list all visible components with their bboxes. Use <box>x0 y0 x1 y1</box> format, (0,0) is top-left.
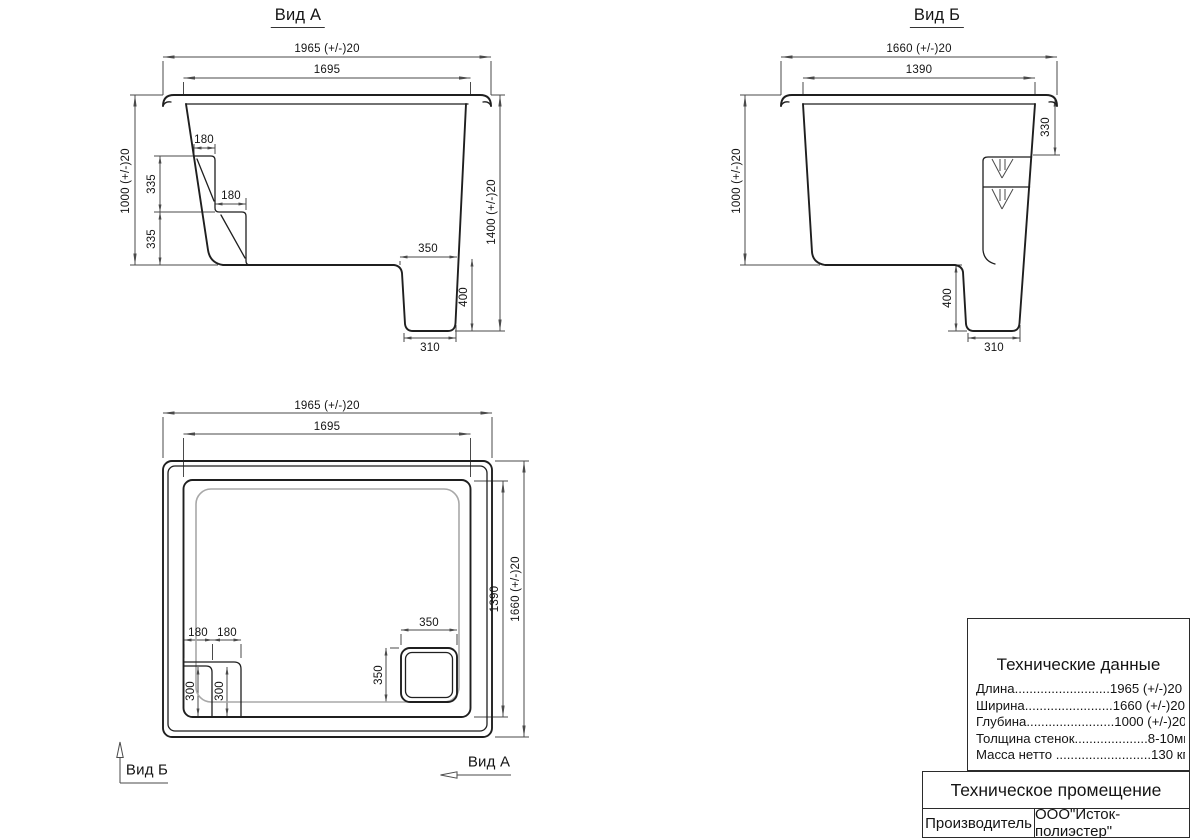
dim-label-top-step-width-2: 180 <box>217 627 237 639</box>
dim-label-top-width-inner: 1390 <box>489 586 501 612</box>
dim-label-a-step-width-1: 180 <box>194 134 214 146</box>
basin-outline <box>186 104 466 331</box>
flange-underside <box>781 102 1057 106</box>
view-b-arrow-head <box>117 742 123 758</box>
dim-label-top-sump-width: 350 <box>419 617 439 629</box>
tech-data-row: Толщина стенок....................8-10мм <box>976 731 1185 748</box>
tech-data-title: Технические данные <box>968 655 1189 675</box>
dim-label-top-sump-length: 350 <box>373 665 385 685</box>
tech-data-row: Ширина........................1660 (+/-)… <box>976 698 1185 715</box>
sump-inner-edge <box>406 653 453 698</box>
dim-label-a-sump-bottom: 310 <box>420 342 440 354</box>
view-b-drawing <box>740 57 1060 342</box>
dim-label-top-step-len-2: 300 <box>214 681 226 701</box>
dim-label-a-depth-right: 1400 (+/-)20 <box>486 179 498 244</box>
dim-label-b-step-depth: 330 <box>1040 117 1052 137</box>
dim-label-a-sump-top: 350 <box>418 243 438 255</box>
view-a-arrow-label: Вид А <box>468 754 510 771</box>
dim-label-a-step-rise-2: 335 <box>146 229 158 249</box>
dim-label-top-step-len-1: 300 <box>185 681 197 701</box>
tech-data-box: Технические данные Длина................… <box>967 618 1190 771</box>
tech-data-row: Глубина........................1000 (+/-… <box>976 714 1185 731</box>
product-name-box: Техническое промещение <box>922 771 1190 809</box>
dim-label-top-length-outer: 1965 (+/-)20 <box>294 400 359 412</box>
ext-line <box>740 95 1060 265</box>
dim-label-top-width-outer: 1660 (+/-)20 <box>510 556 522 621</box>
manufacturer-value: ООО"Исток-полиэстер" <box>1035 809 1189 837</box>
view-a-drawing <box>130 57 505 342</box>
step-hatch-lines <box>197 159 245 258</box>
dim-label-top-step-width-1: 180 <box>188 627 208 639</box>
dim-label-a-depth-left: 1000 (+/-)20 <box>120 148 132 213</box>
dim-label-b-sump-bottom: 310 <box>984 342 1004 354</box>
tech-data-row: Масса нетто ..........................13… <box>976 747 1185 764</box>
dim-label-a-sump-depth: 400 <box>458 287 470 307</box>
basin-outline <box>803 104 1035 331</box>
view-b-arrow-label: Вид Б <box>126 762 168 779</box>
product-name: Техническое промещение <box>923 772 1189 808</box>
flange-underside <box>163 102 491 106</box>
view-a-arrow-head <box>441 772 458 778</box>
top-view-drawing <box>117 413 529 783</box>
view-a-title: Вид А <box>271 6 325 28</box>
manufacturer-box: Производитель ООО"Исток-полиэстер" <box>922 808 1190 838</box>
floor-edge <box>196 489 459 702</box>
drawing-sheet: Вид А 1965 (+/-)20 1695 1000 (+/-)20 335… <box>0 0 1200 838</box>
dim-label-a-step-width-2: 180 <box>221 190 241 202</box>
dim-label-b-sump-depth: 400 <box>942 288 954 308</box>
step-draft-marks <box>992 159 1013 209</box>
dim-label-a-width-inner: 1695 <box>314 64 340 76</box>
dim-label-a-step-rise-1: 335 <box>146 174 158 194</box>
tech-data-row: Длина..........................1965 (+/-… <box>976 681 1185 698</box>
ext-line <box>184 644 241 660</box>
sump-outline <box>401 648 457 702</box>
tech-data-rows: Длина..........................1965 (+/-… <box>976 681 1185 764</box>
manufacturer-label: Производитель <box>923 809 1035 837</box>
dim-label-b-depth-left: 1000 (+/-)20 <box>731 148 743 213</box>
dim-label-top-length-inner: 1695 <box>314 421 340 433</box>
dim-label-b-width-outer: 1660 (+/-)20 <box>886 43 951 55</box>
view-b-title: Вид Б <box>910 6 964 28</box>
dim-label-b-width-inner: 1390 <box>906 64 932 76</box>
dim-label-a-width-outer: 1965 (+/-)20 <box>294 43 359 55</box>
